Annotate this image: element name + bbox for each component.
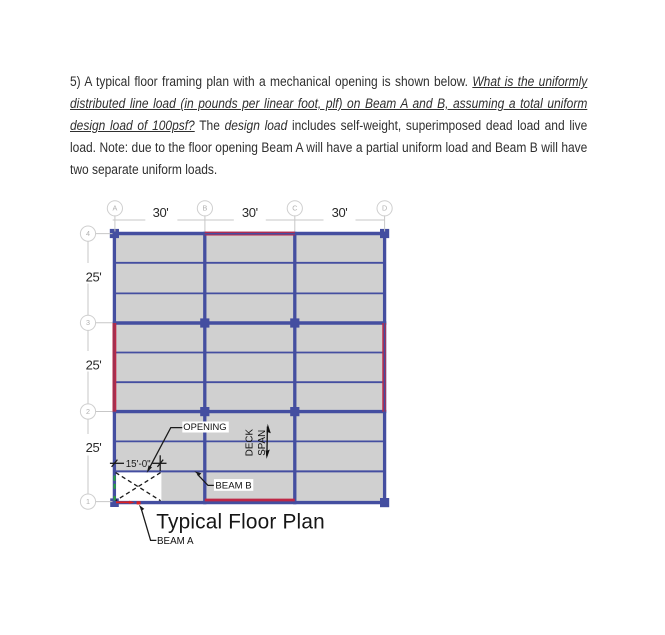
svg-text:A: A bbox=[113, 204, 118, 213]
svg-text:25': 25' bbox=[86, 440, 102, 455]
svg-text:30': 30' bbox=[332, 205, 348, 220]
svg-text:30': 30' bbox=[153, 205, 169, 220]
svg-text:OPENING: OPENING bbox=[183, 421, 226, 432]
svg-text:DECK: DECK bbox=[244, 429, 255, 457]
svg-text:Typical Floor Plan: Typical Floor Plan bbox=[156, 510, 325, 533]
svg-text:BEAM B: BEAM B bbox=[215, 480, 251, 491]
svg-text:3: 3 bbox=[86, 318, 90, 327]
svg-text:D: D bbox=[382, 204, 387, 213]
svg-text:2: 2 bbox=[86, 407, 90, 416]
svg-text:1: 1 bbox=[86, 497, 90, 506]
svg-text:4: 4 bbox=[86, 229, 90, 238]
svg-text:25': 25' bbox=[86, 269, 102, 284]
svg-text:15'-0": 15'-0" bbox=[126, 459, 151, 470]
svg-text:30': 30' bbox=[242, 205, 258, 220]
svg-text:25': 25' bbox=[86, 357, 102, 372]
svg-text:B: B bbox=[203, 204, 208, 213]
svg-text:C: C bbox=[292, 204, 297, 213]
svg-text:BEAM A: BEAM A bbox=[157, 536, 194, 547]
